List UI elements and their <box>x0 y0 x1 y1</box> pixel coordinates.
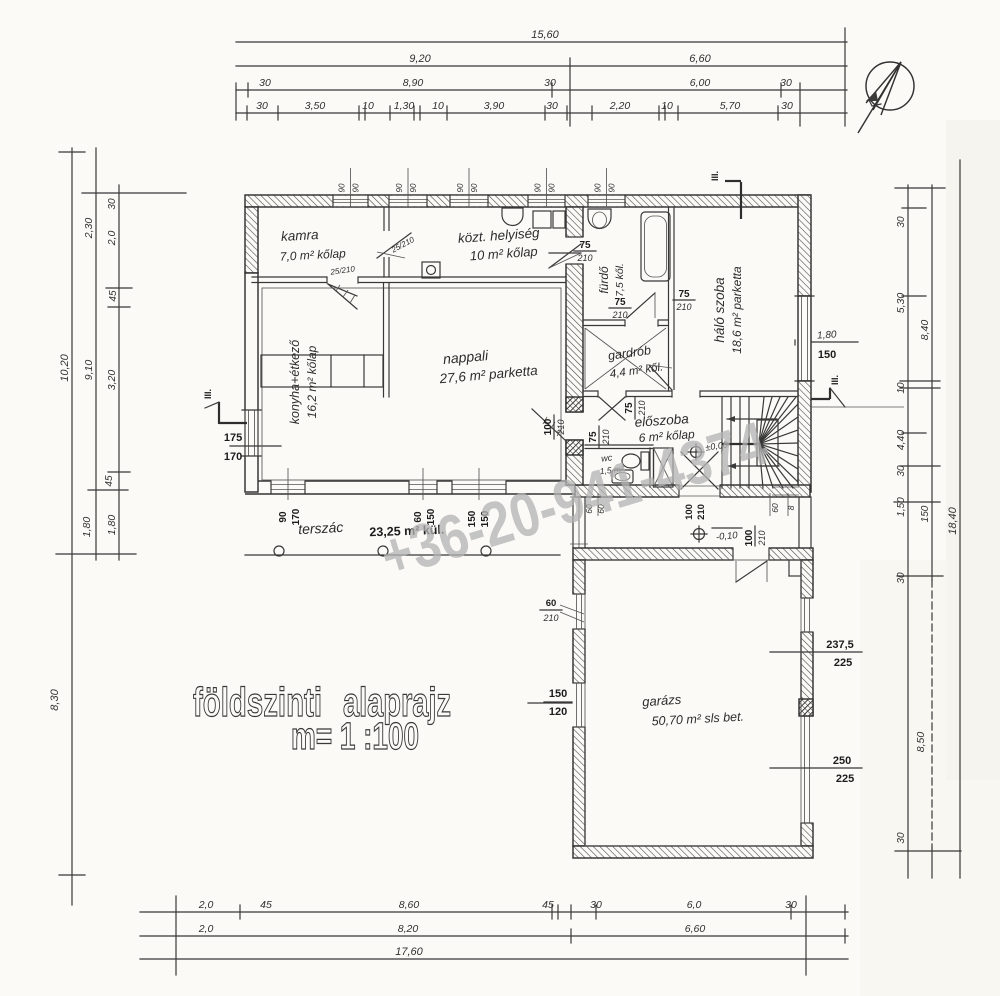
svg-text:10: 10 <box>896 382 907 394</box>
svg-text:60: 60 <box>546 598 557 609</box>
svg-text:III.: III. <box>203 389 213 399</box>
svg-text:1,30: 1,30 <box>394 100 415 112</box>
svg-text:5,70: 5,70 <box>720 100 741 112</box>
svg-text:1,50: 1,50 <box>896 497 907 517</box>
svg-text:30: 30 <box>256 100 268 112</box>
svg-text:237,5: 237,5 <box>826 639 854 651</box>
svg-text:4,40: 4,40 <box>895 430 907 451</box>
svg-text:250: 250 <box>833 755 851 767</box>
svg-text:2,30: 2,30 <box>83 218 95 240</box>
svg-text:3,20: 3,20 <box>106 370 118 391</box>
svg-text:m= 1 :100: m= 1 :100 <box>291 716 419 758</box>
svg-text:1,80: 1,80 <box>81 517 93 538</box>
svg-text:175: 175 <box>224 432 242 444</box>
svg-text:garázs: garázs <box>642 692 682 710</box>
svg-text:6,00: 6,00 <box>690 77 711 89</box>
svg-text:90: 90 <box>409 183 418 192</box>
svg-text:1,80: 1,80 <box>817 329 838 341</box>
svg-text:1,80: 1,80 <box>106 515 118 536</box>
svg-text:2,0: 2,0 <box>198 899 214 911</box>
svg-text:10: 10 <box>362 100 374 112</box>
svg-text:18,40: 18,40 <box>947 506 959 534</box>
svg-text:2,0: 2,0 <box>106 231 118 247</box>
svg-text:6,60: 6,60 <box>685 923 706 935</box>
svg-text:kamra: kamra <box>281 227 320 244</box>
svg-text:210: 210 <box>542 613 558 623</box>
svg-text:210: 210 <box>576 253 592 263</box>
svg-text:30: 30 <box>896 572 907 584</box>
svg-text:90: 90 <box>608 183 617 192</box>
svg-text:90: 90 <box>352 183 361 192</box>
svg-text:8,40: 8,40 <box>919 320 931 341</box>
svg-text:10,20: 10,20 <box>59 353 71 381</box>
svg-text:210: 210 <box>556 419 566 435</box>
svg-text:7,5 kől.: 7,5 kől. <box>614 263 626 297</box>
svg-text:-0,10: -0,10 <box>716 530 739 543</box>
svg-text:75: 75 <box>614 297 626 308</box>
svg-text:30: 30 <box>546 100 558 112</box>
svg-text:225: 225 <box>834 657 852 669</box>
svg-text:konyha+étkező: konyha+étkező <box>288 339 302 424</box>
svg-text:9,10: 9,10 <box>83 360 95 381</box>
svg-text:8,30: 8,30 <box>49 688 61 710</box>
svg-text:30: 30 <box>780 77 792 89</box>
svg-text:90: 90 <box>470 183 479 192</box>
svg-text:8,20: 8,20 <box>398 923 419 935</box>
svg-text:2,20: 2,20 <box>609 100 631 112</box>
svg-text:90: 90 <box>456 183 465 192</box>
svg-text:100: 100 <box>543 418 554 435</box>
svg-text:15,60: 15,60 <box>531 29 559 41</box>
svg-text:90: 90 <box>278 511 289 523</box>
svg-text:150: 150 <box>920 505 931 522</box>
svg-text:210: 210 <box>696 504 707 520</box>
svg-text:30: 30 <box>259 77 271 89</box>
svg-text:III.: III. <box>830 375 840 385</box>
svg-text:210: 210 <box>675 302 691 312</box>
svg-text:60: 60 <box>770 503 780 513</box>
svg-text:8,90: 8,90 <box>403 77 424 89</box>
svg-text:210: 210 <box>611 310 627 320</box>
svg-text:150: 150 <box>549 688 567 700</box>
svg-text:225: 225 <box>836 773 854 785</box>
svg-text:75: 75 <box>588 431 599 443</box>
svg-text:10: 10 <box>432 100 444 112</box>
svg-text:100: 100 <box>744 529 755 546</box>
svg-text:90: 90 <box>594 183 603 192</box>
svg-text:90: 90 <box>338 183 347 192</box>
svg-text:2,0: 2,0 <box>198 923 214 935</box>
svg-text:6,60: 6,60 <box>689 53 711 65</box>
svg-text:fürdő: fürdő <box>597 266 611 294</box>
svg-text:30: 30 <box>107 198 118 210</box>
svg-text:75: 75 <box>579 240 591 251</box>
svg-text:10: 10 <box>661 100 673 112</box>
svg-text:170: 170 <box>224 451 242 463</box>
svg-text:90: 90 <box>395 183 404 192</box>
svg-text:90: 90 <box>548 183 557 192</box>
svg-text:3,50: 3,50 <box>305 100 326 112</box>
svg-text:30: 30 <box>544 77 556 89</box>
svg-text:30: 30 <box>781 100 793 112</box>
svg-text:30: 30 <box>896 832 907 844</box>
svg-text:75: 75 <box>678 289 690 300</box>
svg-text:8,50: 8,50 <box>915 732 927 753</box>
svg-text:terszác: terszác <box>298 519 344 537</box>
svg-text:3,90: 3,90 <box>484 100 505 112</box>
svg-text:75: 75 <box>624 402 635 414</box>
svg-text:16,2 m² kőlap: 16,2 m² kőlap <box>305 345 319 418</box>
svg-text:45: 45 <box>260 899 272 911</box>
svg-text:6,0: 6,0 <box>687 899 702 911</box>
svg-text:45: 45 <box>108 290 119 302</box>
svg-text:210: 210 <box>757 530 767 546</box>
svg-text:háló szoba: háló szoba <box>712 277 727 343</box>
svg-text:90: 90 <box>534 183 543 192</box>
svg-text:120: 120 <box>549 706 567 718</box>
svg-text:9,20: 9,20 <box>409 53 431 65</box>
svg-text:5,30: 5,30 <box>895 293 907 314</box>
svg-text:45: 45 <box>104 475 115 487</box>
svg-text:100: 100 <box>684 504 695 520</box>
svg-text:30: 30 <box>896 216 907 228</box>
svg-text:150: 150 <box>818 349 836 361</box>
svg-text:18,6 m² parketta: 18,6 m² parketta <box>730 266 744 354</box>
svg-text:8,60: 8,60 <box>399 899 420 911</box>
svg-text:30: 30 <box>896 465 907 477</box>
svg-text:8: 8 <box>786 505 796 510</box>
svg-text:210: 210 <box>601 429 611 445</box>
svg-text:III.: III. <box>710 171 720 181</box>
svg-text:17,60: 17,60 <box>395 946 423 958</box>
